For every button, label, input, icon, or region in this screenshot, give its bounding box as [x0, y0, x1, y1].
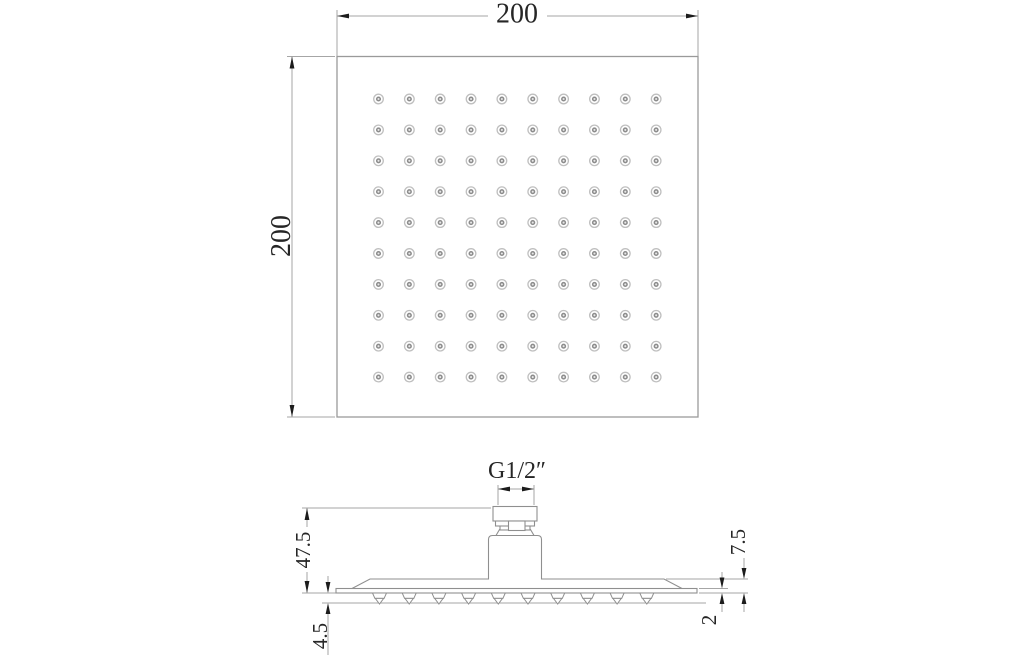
nozzle-hole-dot	[624, 314, 628, 318]
nozzle-hole-dot	[377, 252, 381, 256]
nozzle-hole-dot	[500, 159, 504, 163]
nozzle-hole-dot	[531, 97, 535, 101]
nozzle-hole-dot	[438, 221, 442, 225]
nozzle-hole-dot	[469, 283, 473, 287]
shower-head-technical-drawing: 200 200 G1/2″	[0, 0, 1024, 657]
arrow-down	[305, 581, 310, 593]
nozzle-hole-dot	[654, 221, 658, 225]
side-view	[302, 507, 748, 605]
nozzle-hole-dot	[593, 159, 597, 163]
nozzle-hole-dot	[654, 190, 658, 194]
nozzle-hole-dot	[500, 97, 504, 101]
nozzle-hole-dot	[408, 252, 412, 256]
arrow-up	[305, 508, 310, 520]
dim-4-5: 4.5	[308, 576, 332, 655]
nozzle-hole-dot	[531, 128, 535, 132]
nozzle-hole-dot	[593, 344, 597, 348]
nozzle-hole-dot	[377, 221, 381, 225]
side-nozzles	[373, 593, 654, 604]
nozzle-hole-dot	[562, 375, 566, 379]
nozzle-hole-dot	[531, 314, 535, 318]
nozzle-hole-dot	[593, 283, 597, 287]
arrow-down	[326, 582, 331, 593]
nozzle-hole-dot	[531, 375, 535, 379]
nozzle-hole-dot	[377, 375, 381, 379]
side-nozzle-collar	[432, 593, 446, 598]
arrow-up	[290, 57, 295, 69]
nozzle-hole-dot	[469, 128, 473, 132]
nozzle-hole-dot	[469, 252, 473, 256]
nozzle-hole-dot	[408, 221, 412, 225]
nozzle-hole-dot	[654, 375, 658, 379]
nozzle-hole-dot	[438, 375, 442, 379]
nozzle-hole-dot	[438, 252, 442, 256]
nozzle-hole-dot	[624, 159, 628, 163]
nozzle-hole-dot	[562, 283, 566, 287]
nozzle-hole-dot	[469, 159, 473, 163]
nozzle-hole-dot	[593, 314, 597, 318]
arrow-up	[326, 603, 331, 614]
dim-height-200: 200	[266, 57, 335, 418]
dim-width-200: 200	[337, 0, 698, 56]
nozzle-hole-dot	[593, 97, 597, 101]
nozzle-hole-dot	[469, 221, 473, 225]
nozzle-hole-dot	[562, 252, 566, 256]
nozzle-hole-dot	[562, 128, 566, 132]
nozzle-hole-dot	[531, 344, 535, 348]
nozzle-hole-dot	[438, 314, 442, 318]
side-nozzle-collar	[580, 593, 594, 598]
nozzle-hole-dot	[377, 283, 381, 287]
side-nozzle-collar	[462, 593, 476, 598]
nozzle-hole-dot	[377, 128, 381, 132]
arrow-left	[337, 14, 349, 19]
nozzle-hole-dot	[562, 221, 566, 225]
nozzle-hole-dot	[469, 344, 473, 348]
side-nozzle-collar	[373, 593, 387, 598]
dim-47-5: 47.5	[291, 508, 315, 593]
nozzle-hole-dot	[593, 375, 597, 379]
nozzle-hole-dot	[593, 221, 597, 225]
nozzle-hole-dot	[624, 128, 628, 132]
nozzle-hole-dot	[531, 221, 535, 225]
nozzle-hole-dot	[500, 190, 504, 194]
nozzle-hole-dot	[624, 375, 628, 379]
dim-47-5-label: 47.5	[291, 532, 315, 569]
arrow-up	[742, 593, 747, 604]
nozzle-hole-dot	[562, 159, 566, 163]
nozzle-hole-dot	[593, 190, 597, 194]
arrow-right	[686, 14, 698, 19]
nozzle-hole-dot	[654, 97, 658, 101]
nozzle-hole-dot	[500, 128, 504, 132]
nozzle-hole-dot	[624, 252, 628, 256]
nozzle-hole-dot	[654, 344, 658, 348]
side-nozzle-collar	[521, 593, 535, 598]
dim-4-5-label: 4.5	[308, 623, 332, 649]
nozzle-hole-dot	[438, 159, 442, 163]
thread-body	[493, 507, 537, 522]
nozzle-hole-dot	[531, 252, 535, 256]
nozzle-hole-dot	[438, 344, 442, 348]
arrow-down	[290, 405, 295, 417]
nozzle-hole-dot	[624, 190, 628, 194]
nozzle-hole-dot	[469, 190, 473, 194]
nozzle-hole-dot	[562, 314, 566, 318]
nozzle-hole-dot	[562, 97, 566, 101]
nozzle-hole-dot	[408, 375, 412, 379]
nozzle-hole-dot	[469, 314, 473, 318]
front-view	[337, 57, 698, 418]
side-nozzle-collar	[551, 593, 565, 598]
shower-face-outline	[337, 57, 698, 418]
connector-base-block	[489, 536, 542, 580]
nozzle-hole-dot	[500, 283, 504, 287]
nozzle-hole-dot	[438, 190, 442, 194]
nozzle-hole-dot	[438, 97, 442, 101]
nozzle-hole-dot	[562, 190, 566, 194]
nozzle-hole-dot	[377, 159, 381, 163]
nozzle-hole-dot	[377, 97, 381, 101]
arrow-down	[742, 568, 747, 579]
nozzle-hole-dot	[377, 314, 381, 318]
nozzle-hole-dot	[654, 252, 658, 256]
nozzle-hole-dot	[500, 344, 504, 348]
side-nozzle-collar	[640, 593, 654, 598]
arrow-right	[522, 487, 534, 492]
side-nozzle-collar	[610, 593, 624, 598]
nozzle-hole-dot	[408, 314, 412, 318]
nozzle-hole-dot	[624, 344, 628, 348]
nozzle-hole-dot	[469, 375, 473, 379]
nozzle-hole-dot	[654, 283, 658, 287]
nozzle-hole-dot	[531, 283, 535, 287]
nozzle-hole-dot	[377, 344, 381, 348]
side-nozzle-collar	[402, 593, 416, 598]
nozzle-hole-dot	[500, 375, 504, 379]
dim-2-label: 2	[697, 615, 721, 626]
nozzle-hole-dot	[408, 159, 412, 163]
nozzle-hole-dot	[531, 159, 535, 163]
dim-2: 2	[697, 572, 724, 625]
drawing-canvas: 200 200 G1/2″	[0, 0, 1024, 657]
nozzle-hole-dot	[654, 128, 658, 132]
head-top-bevel	[352, 579, 682, 589]
nozzle-hole-dot	[469, 97, 473, 101]
nozzle-hole-dot	[408, 283, 412, 287]
dim-7-5: 7.5	[726, 529, 750, 612]
nozzle-hole-dot	[500, 252, 504, 256]
arrow-down	[720, 578, 725, 589]
nozzle-hole-dot	[408, 128, 412, 132]
face-plate	[336, 589, 697, 594]
nozzle-hole-dot	[654, 159, 658, 163]
thread-size-label: G1/2″	[488, 458, 546, 484]
nozzle-hole-dot	[500, 221, 504, 225]
nozzle-hole-dot	[500, 314, 504, 318]
thread-notch	[509, 521, 526, 531]
nozzle-hole-dot	[408, 190, 412, 194]
nozzle-hole-dot	[624, 221, 628, 225]
nozzle-hole-dot	[531, 190, 535, 194]
nozzle-hole-dot	[408, 344, 412, 348]
nozzle-hole-dot	[654, 314, 658, 318]
nozzle-hole-dot	[593, 252, 597, 256]
arrow-up	[720, 593, 725, 604]
nozzle-hole-dot	[593, 128, 597, 132]
dim-thread-g12: G1/2″	[488, 458, 546, 505]
nozzle-hole-dot	[562, 344, 566, 348]
nozzle-hole-dot	[624, 97, 628, 101]
dim-height-label: 200	[266, 215, 297, 257]
side-nozzle-collar	[491, 593, 505, 598]
nozzle-hole-dot	[377, 190, 381, 194]
dim-7-5-label: 7.5	[726, 529, 750, 555]
nozzle-hole-dot	[624, 283, 628, 287]
nozzle-hole-dot	[408, 97, 412, 101]
nozzle-hole-dot	[438, 128, 442, 132]
dim-width-label: 200	[496, 0, 538, 30]
arrow-left	[498, 487, 510, 492]
nozzle-hole-dot	[438, 283, 442, 287]
